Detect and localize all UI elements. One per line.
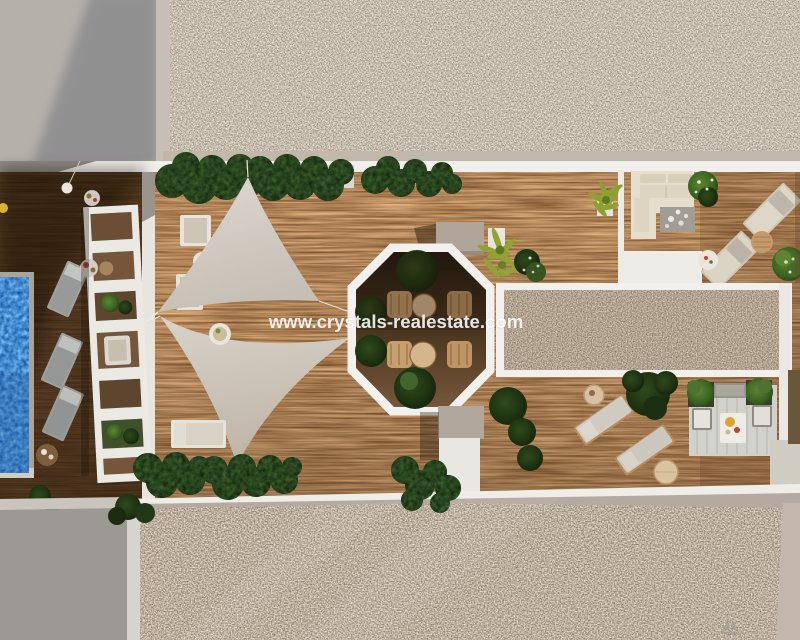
- svg-text:www.crystals-realestate.com: www.crystals-realestate.com: [268, 311, 524, 332]
